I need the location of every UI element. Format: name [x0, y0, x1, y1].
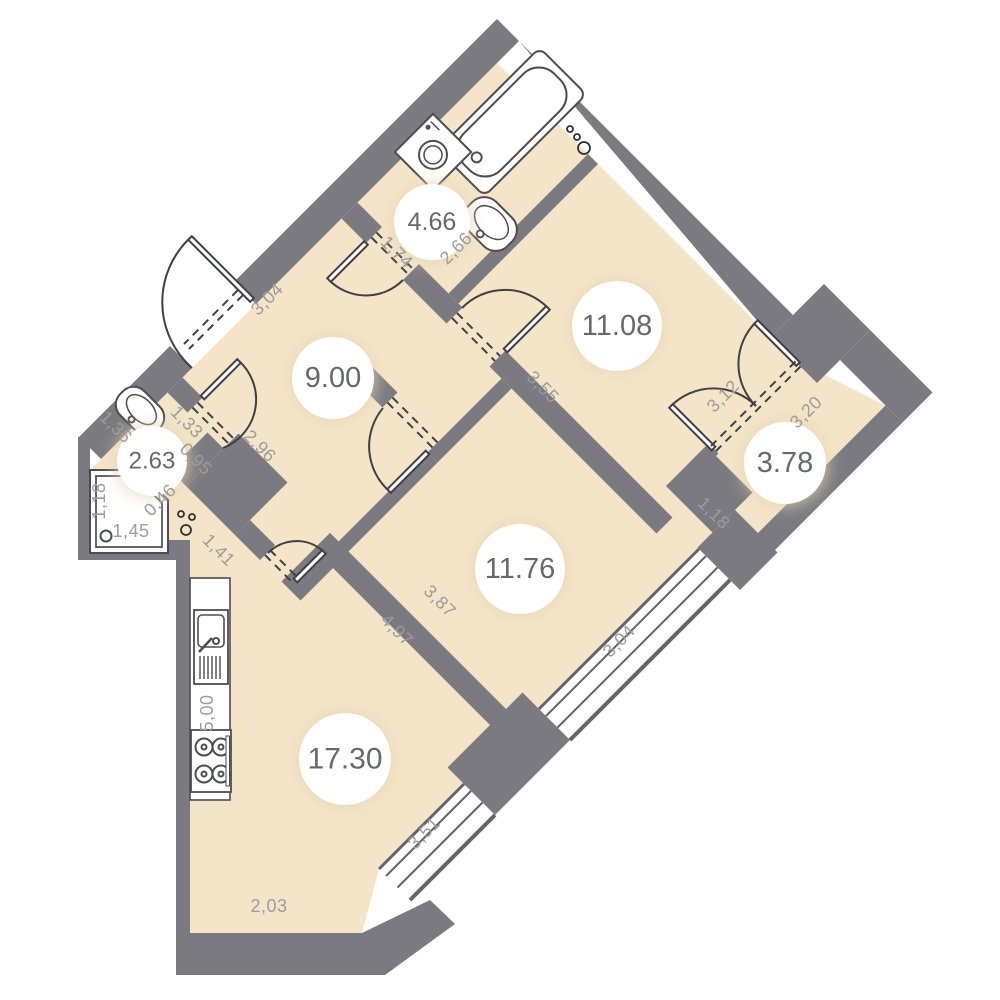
- room-living-room: 11.08: [572, 281, 662, 371]
- dimension-label: 1,45: [112, 521, 149, 541]
- wall-kitchen-left: [176, 552, 190, 933]
- room-area-value: 17.30: [307, 743, 382, 776]
- room-area-value: 2.63: [129, 448, 176, 475]
- room-area-value: 11.76: [485, 553, 555, 585]
- room-kitchen-living-room: 17.30: [299, 713, 391, 805]
- dimension-label: 1,18: [89, 482, 109, 519]
- riser-dot: [574, 134, 580, 140]
- dimension-label: 2,03: [250, 896, 287, 916]
- wall-bottom: [176, 933, 362, 975]
- room-area-value: 11.08: [582, 310, 652, 342]
- room-bedroom: 11.76: [475, 524, 565, 614]
- room-area-value: 3.78: [757, 447, 813, 479]
- room-area-value: 9.00: [305, 362, 361, 394]
- kitchen-counter-icon: [190, 578, 231, 800]
- wall-bottom-diagonal: [362, 900, 455, 975]
- floor-plan-drawing: 4.669.0011.082.633.7811.7617.30 1,742,66…: [0, 0, 1000, 1000]
- floor-plan-page: 4.669.0011.082.633.7811.7617.30 1,742,66…: [0, 0, 1000, 1000]
- riser-dot: [567, 126, 573, 132]
- kitchen-sink-icon: [194, 610, 228, 684]
- room-hallway: 9.00: [292, 337, 374, 419]
- stove-icon: [191, 730, 231, 792]
- room-balcony: 3.78: [744, 422, 826, 504]
- room-area-value: 4.66: [408, 208, 457, 236]
- dimension-label: 5,00: [197, 694, 217, 731]
